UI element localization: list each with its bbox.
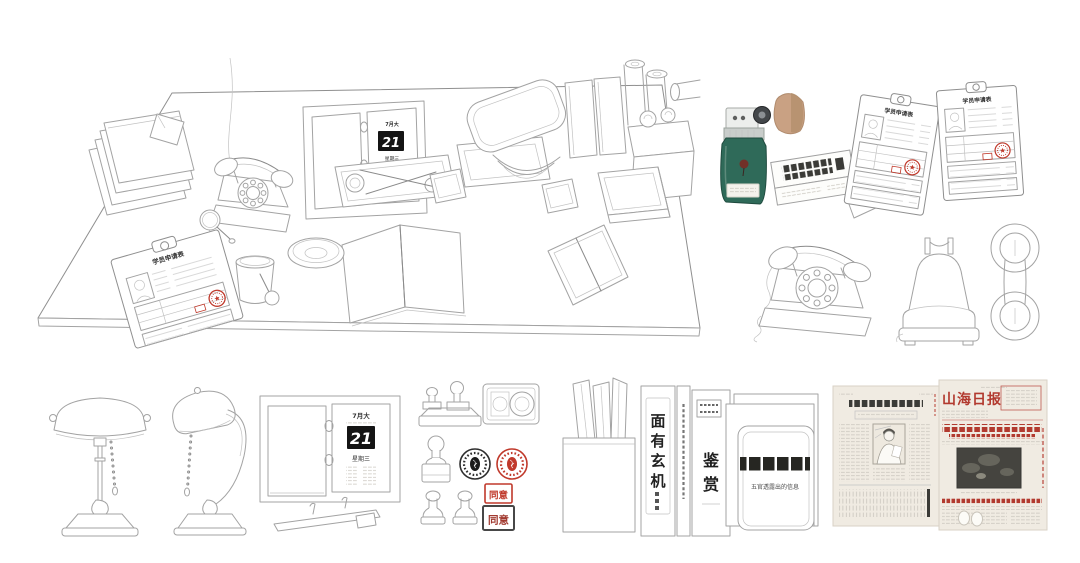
round-tray	[288, 238, 344, 268]
stamps-group: 同意 同意	[411, 380, 543, 542]
red-subheadline	[949, 434, 1035, 439]
ink-pad-box	[483, 384, 539, 424]
text-column	[909, 424, 931, 482]
photo-person	[873, 424, 905, 464]
text-column	[1010, 512, 1041, 526]
desk-scene: 7月大 21 星期三	[16, 48, 716, 350]
svg-text:有: 有	[650, 432, 665, 450]
svg-text:机: 机	[650, 472, 665, 490]
closed-book	[598, 167, 670, 223]
clipboard-a	[844, 88, 941, 215]
prop-sheet-canvas: 7月大 21 星期三	[0, 0, 1080, 563]
calendar-lunar-col	[362, 466, 376, 486]
newspaper-left-page	[833, 386, 939, 526]
clipboard-b	[936, 79, 1024, 200]
svg-text:玄: 玄	[650, 452, 665, 470]
photo-oval	[972, 512, 983, 526]
small-square-tray	[430, 169, 466, 203]
cigarette-box	[771, 150, 857, 205]
svg-text:赏: 赏	[703, 475, 719, 494]
lamp-front-view	[48, 386, 160, 542]
lamp-side-view	[152, 384, 256, 542]
seal-impression-black	[460, 449, 490, 479]
pull-chain	[185, 435, 193, 496]
scroll-end	[626, 60, 645, 68]
calendar-month: 7月大	[385, 121, 398, 128]
rotary-phone-three-quarter	[754, 243, 873, 342]
stamp-front-view	[422, 436, 450, 482]
seal-ball	[265, 291, 279, 305]
banker-lamp-front	[50, 398, 151, 536]
front-cover	[738, 426, 814, 530]
phones-group	[753, 220, 1053, 342]
text-column	[839, 424, 869, 482]
paper-stack	[89, 111, 194, 215]
desk-calendar-front: 7月大 21 星期三	[258, 394, 404, 546]
folders-group: 五官透露出的信息	[720, 392, 834, 538]
document-holder	[563, 378, 635, 532]
small-stamp	[421, 491, 445, 524]
small-stamp	[453, 491, 477, 524]
small-square-tray	[542, 179, 578, 213]
svg-text:鉴: 鉴	[702, 451, 720, 470]
clipboards-group: 学员申请表	[846, 84, 1024, 234]
calendar-month: 7月大	[352, 411, 370, 420]
headline-glyphs	[849, 399, 923, 407]
calendar-weekday: 星期三	[352, 455, 370, 463]
pull-chain	[110, 441, 118, 495]
cork	[774, 93, 804, 134]
svg-text:同意: 同意	[489, 490, 509, 502]
cover-title-glyphs	[740, 456, 810, 471]
vertical-text-block	[839, 489, 925, 517]
bottle-emblem	[740, 160, 749, 169]
green-bottle	[721, 107, 771, 205]
scroll-end	[647, 70, 667, 78]
penholder-books-group: 面 有 玄 机 鉴 赏	[551, 374, 741, 546]
calendar-lunar-col	[346, 466, 358, 486]
stacked-folders: 五官透露出的信息	[726, 394, 818, 530]
masthead: 山海日报	[942, 391, 1002, 408]
handset-top-view	[991, 224, 1039, 340]
book-spine-mystery: 面 有 玄 机	[641, 386, 675, 536]
cover-subtitle: 五官透露出的信息	[751, 483, 799, 491]
stamp-rack	[419, 382, 481, 427]
svg-text:面: 面	[650, 412, 665, 430]
calendar-date: 21	[382, 136, 400, 151]
seal-impression-red	[497, 449, 527, 479]
calendar-board: 7月大 21 星期三	[260, 396, 400, 502]
calendar-date: 21	[350, 429, 372, 448]
red-headline	[942, 424, 1042, 432]
newspaper-group: 山海日报	[831, 372, 1055, 546]
red-headline-2	[942, 498, 1042, 504]
banker-lamp-side	[167, 381, 246, 535]
photo-oval	[959, 511, 970, 525]
square-seal-dark: 同意	[483, 506, 514, 530]
open-notebook	[342, 225, 466, 326]
phone-base-front-view	[897, 238, 979, 345]
svg-text:同意: 同意	[488, 514, 509, 527]
newspaper-front-page: 山海日报	[939, 380, 1047, 530]
square-seal-red: 同意	[485, 484, 512, 503]
book-spine-thin	[677, 386, 690, 536]
teacup	[236, 256, 279, 305]
